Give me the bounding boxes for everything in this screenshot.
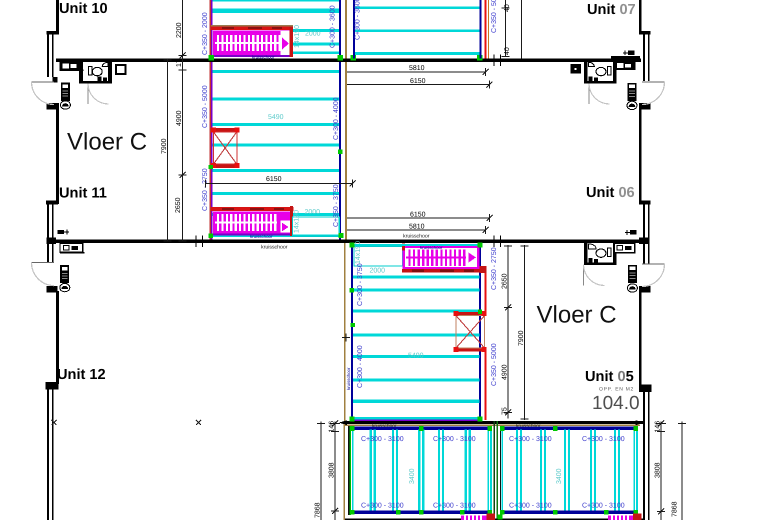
svg-text:C+350 - 2750: C+350 - 2750 bbox=[491, 247, 498, 290]
svg-text:5810: 5810 bbox=[409, 224, 425, 231]
svg-text:C+300 - 3100: C+300 - 3100 bbox=[361, 436, 404, 443]
svg-text:Unit 10: Unit 10 bbox=[59, 1, 108, 17]
svg-text:C+350 - 2000: C+350 - 2000 bbox=[202, 12, 209, 55]
svg-text:C+300 - 3100: C+300 - 3100 bbox=[361, 503, 404, 510]
svg-text:C+350 - 5000: C+350 - 5000 bbox=[202, 85, 209, 128]
svg-text:2200: 2200 bbox=[176, 22, 183, 38]
svg-text:17: 17 bbox=[176, 59, 183, 67]
svg-text:5490: 5490 bbox=[268, 114, 284, 121]
svg-text:Unit 06: Unit 06 bbox=[586, 185, 635, 201]
svg-text:Unit 07: Unit 07 bbox=[587, 2, 636, 18]
svg-text:kruisschoor: kruisschoor bbox=[346, 367, 351, 390]
svg-text:2650: 2650 bbox=[175, 197, 182, 213]
svg-text:Unit 11: Unit 11 bbox=[59, 186, 107, 202]
svg-text:3808: 3808 bbox=[328, 462, 335, 478]
svg-text:kruisschoor: kruisschoor bbox=[252, 55, 275, 60]
svg-text:C+300 - 4000: C+300 - 4000 bbox=[333, 97, 340, 140]
svg-text:kruisschoor: kruisschoor bbox=[403, 234, 430, 240]
svg-text:C+300 - 3600: C+300 - 3600 bbox=[355, 0, 362, 40]
svg-text:146: 146 bbox=[655, 421, 662, 433]
svg-text:C+300 - 3100: C+300 - 3100 bbox=[433, 503, 476, 510]
svg-text:C+350 - 3750: C+350 - 3750 bbox=[333, 184, 340, 227]
svg-text:14x190: 14x190 bbox=[294, 25, 301, 48]
svg-text:75: 75 bbox=[502, 407, 509, 415]
svg-text:14x190: 14x190 bbox=[294, 210, 301, 233]
svg-text:4900: 4900 bbox=[176, 110, 183, 126]
svg-text:40: 40 bbox=[504, 47, 511, 55]
svg-text:40: 40 bbox=[504, 4, 511, 12]
svg-text:7900: 7900 bbox=[161, 138, 168, 154]
svg-text:kruisschoor: kruisschoor bbox=[516, 423, 541, 429]
svg-text:7868: 7868 bbox=[315, 502, 322, 518]
svg-text:Vloer C: Vloer C bbox=[537, 302, 617, 329]
svg-text:C+300 - 3100: C+300 - 3100 bbox=[509, 436, 552, 443]
svg-text:C+300 - 3100: C+300 - 3100 bbox=[509, 503, 552, 510]
svg-text:146: 146 bbox=[328, 421, 335, 433]
svg-text:3400: 3400 bbox=[409, 468, 416, 484]
svg-text:kruisschoor: kruisschoor bbox=[372, 423, 397, 429]
svg-text:2650: 2650 bbox=[502, 273, 509, 289]
svg-text:C+300 - 3100: C+300 - 3100 bbox=[582, 503, 625, 510]
svg-text:7900: 7900 bbox=[518, 330, 525, 346]
svg-text:C+350 - 2750: C+350 - 2750 bbox=[202, 168, 209, 211]
svg-text:C+300 - 3100: C+300 - 3100 bbox=[582, 436, 625, 443]
svg-text:6150: 6150 bbox=[410, 78, 426, 85]
svg-text:kruisschoor: kruisschoor bbox=[250, 234, 273, 239]
svg-text:6150: 6150 bbox=[410, 212, 426, 219]
svg-text:OPP. EN M2: OPP. EN M2 bbox=[599, 387, 634, 393]
svg-text:3808: 3808 bbox=[655, 462, 662, 478]
svg-text:3400: 3400 bbox=[556, 468, 563, 484]
svg-text:Vloer C: Vloer C bbox=[67, 129, 147, 156]
svg-text:C+300 - 4000: C+300 - 4000 bbox=[357, 345, 364, 388]
svg-text:C+300 - 3100: C+300 - 3100 bbox=[433, 436, 476, 443]
svg-text:C+350 - 5000: C+350 - 5000 bbox=[491, 343, 498, 386]
svg-text:104.0: 104.0 bbox=[592, 393, 640, 414]
svg-text:C+300 - 3750: C+300 - 3750 bbox=[357, 263, 364, 306]
svg-text:4900: 4900 bbox=[502, 364, 509, 380]
svg-text:C+300 - 3600: C+300 - 3600 bbox=[330, 5, 337, 48]
svg-text:kruisschoor: kruisschoor bbox=[261, 245, 288, 251]
svg-text:6150: 6150 bbox=[266, 176, 282, 183]
svg-text:Unit 12: Unit 12 bbox=[57, 367, 106, 383]
svg-text:5810: 5810 bbox=[409, 65, 425, 72]
svg-text:2000: 2000 bbox=[370, 268, 386, 275]
svg-text:C+350 - 5000: C+350 - 5000 bbox=[491, 0, 498, 33]
svg-text:2000: 2000 bbox=[305, 31, 321, 38]
svg-text:7868: 7868 bbox=[671, 501, 678, 517]
svg-text:5490: 5490 bbox=[408, 353, 424, 360]
svg-text:Unit 05: Unit 05 bbox=[585, 369, 634, 385]
svg-text:2000: 2000 bbox=[305, 209, 321, 216]
